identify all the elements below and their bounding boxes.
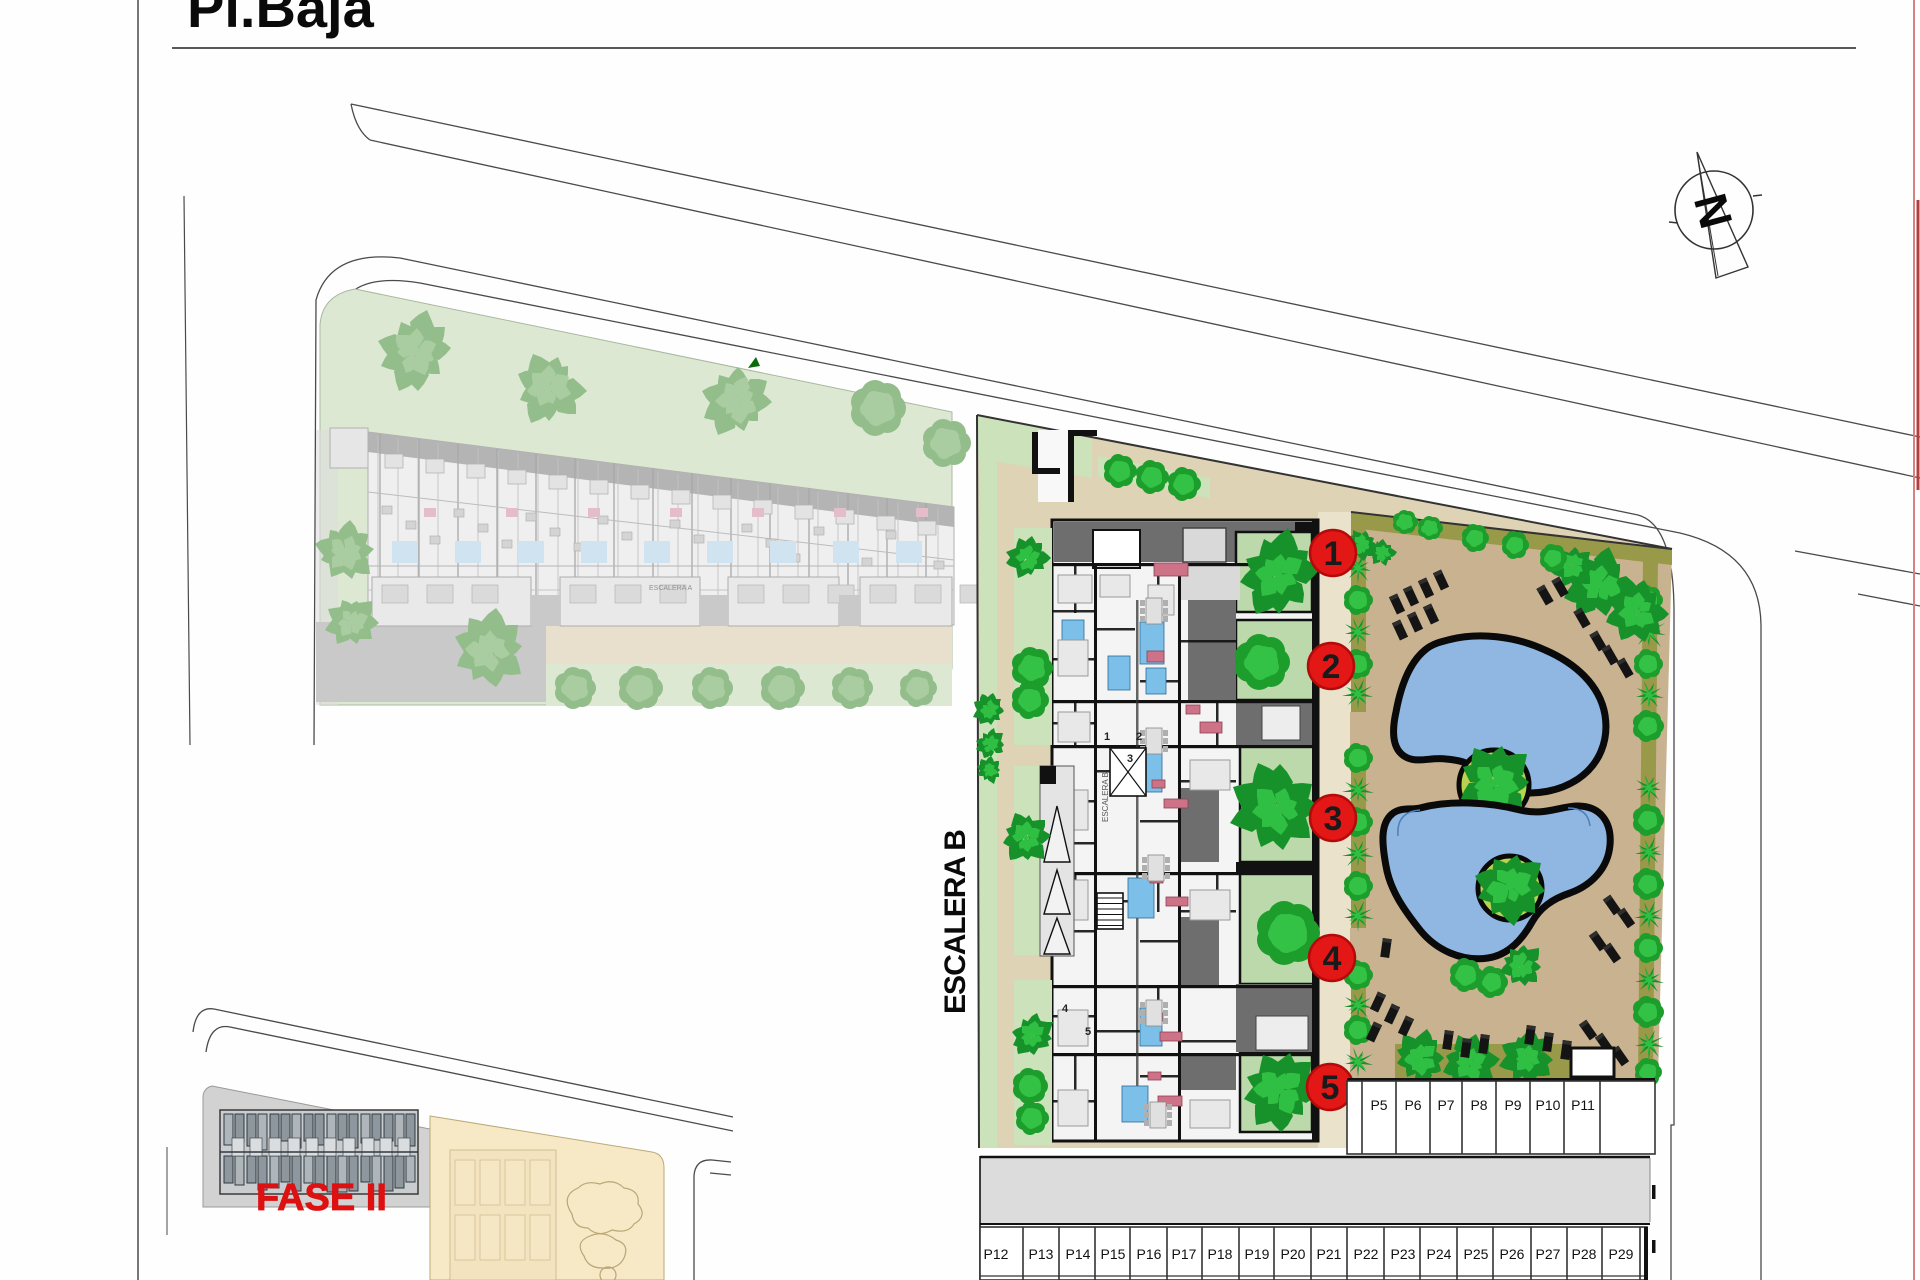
svg-text:P28: P28: [1572, 1246, 1597, 1262]
svg-text:P12: P12: [984, 1246, 1009, 1262]
svg-text:4: 4: [1062, 1003, 1069, 1015]
svg-text:2: 2: [1136, 731, 1142, 743]
svg-text:P13: P13: [1029, 1246, 1054, 1262]
svg-text:P29: P29: [1609, 1246, 1634, 1262]
svg-text:P16: P16: [1137, 1246, 1162, 1262]
svg-text:P9: P9: [1504, 1097, 1521, 1113]
svg-text:2: 2: [1322, 648, 1341, 686]
svg-text:P19: P19: [1245, 1246, 1270, 1262]
svg-text:P8: P8: [1470, 1097, 1487, 1113]
svg-text:1: 1: [1104, 731, 1110, 743]
svg-text:FASE II: FASE II: [256, 1177, 387, 1219]
svg-text:5: 5: [1085, 1026, 1091, 1038]
svg-text:P27: P27: [1536, 1246, 1561, 1262]
svg-text:Pl.Baja: Pl.Baja: [187, 0, 375, 39]
svg-text:P26: P26: [1500, 1246, 1525, 1262]
svg-text:P18: P18: [1208, 1246, 1233, 1262]
svg-text:P6: P6: [1404, 1097, 1421, 1113]
svg-text:4: 4: [1323, 940, 1342, 978]
svg-text:5: 5: [1321, 1069, 1340, 1107]
svg-text:P23: P23: [1391, 1246, 1416, 1262]
svg-text:P22: P22: [1354, 1246, 1379, 1262]
svg-text:P25: P25: [1464, 1246, 1489, 1262]
svg-text:P11: P11: [1571, 1097, 1595, 1113]
svg-text:P15: P15: [1101, 1246, 1126, 1262]
svg-text:P5: P5: [1370, 1097, 1387, 1113]
svg-text:P7: P7: [1437, 1097, 1454, 1113]
svg-text:P21: P21: [1317, 1246, 1342, 1262]
svg-text:P10: P10: [1536, 1097, 1561, 1113]
svg-text:ESCALERA B: ESCALERA B: [1101, 772, 1110, 822]
svg-text:1: 1: [1324, 535, 1343, 573]
svg-text:ESCALERA B: ESCALERA B: [939, 830, 972, 1014]
svg-text:P17: P17: [1172, 1246, 1197, 1262]
svg-text:P24: P24: [1427, 1246, 1452, 1262]
svg-text:P14: P14: [1066, 1246, 1091, 1262]
svg-text:3: 3: [1127, 753, 1133, 765]
svg-text:ESCALERA A: ESCALERA A: [649, 585, 693, 592]
svg-text:P20: P20: [1281, 1246, 1306, 1262]
svg-text:3: 3: [1324, 800, 1343, 838]
